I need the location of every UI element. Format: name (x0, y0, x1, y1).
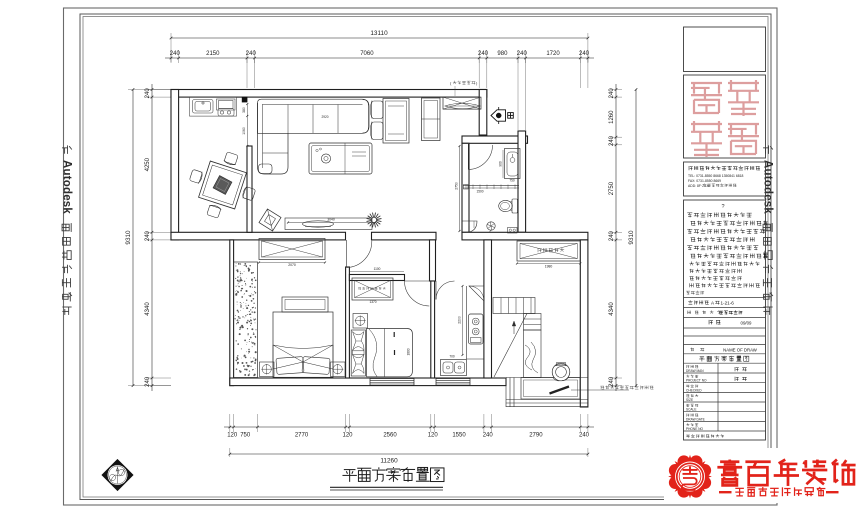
svg-text:240: 240 (246, 51, 257, 57)
svg-text:700: 700 (449, 355, 455, 359)
svg-text:TEL: 0731-8550 8668 1350841 6: TEL: 0731-8550 8668 1350841 6818 (688, 174, 744, 178)
svg-text:750: 750 (509, 179, 515, 183)
svg-text:1100: 1100 (374, 267, 381, 271)
svg-text:900: 900 (499, 161, 503, 167)
svg-text:240: 240 (609, 88, 615, 99)
svg-text:2920: 2920 (321, 115, 328, 119)
svg-text:240: 240 (609, 230, 615, 241)
svg-text:1060: 1060 (242, 127, 246, 135)
svg-text:1980: 1980 (545, 265, 553, 269)
svg-text:Autodesk: Autodesk (60, 160, 72, 214)
svg-text:2750: 2750 (609, 181, 615, 195)
svg-text:2750: 2750 (455, 182, 459, 190)
svg-text:4250: 4250 (145, 157, 151, 171)
svg-text:240: 240 (579, 433, 590, 439)
svg-text:380: 380 (242, 107, 246, 113)
svg-text:2200: 2200 (458, 316, 462, 324)
svg-text:240: 240 (609, 135, 615, 146)
svg-text:9310: 9310 (628, 230, 635, 245)
svg-text:1550: 1550 (452, 433, 466, 439)
svg-text:240: 240 (579, 51, 590, 57)
svg-text:13110: 13110 (370, 30, 388, 37)
svg-text:DRAW MAN: DRAW MAN (686, 369, 704, 373)
svg-text:CHECKED: CHECKED (686, 388, 702, 392)
svg-text:1370: 1370 (369, 300, 376, 304)
svg-text:2770: 2770 (295, 433, 309, 439)
svg-text:1500: 1500 (476, 190, 483, 194)
svg-text:1800: 1800 (407, 348, 411, 355)
svg-text:120: 120 (227, 433, 238, 439)
svg-text:240: 240 (478, 51, 489, 57)
svg-text:9310: 9310 (125, 230, 132, 245)
svg-text:240: 240 (483, 433, 494, 439)
svg-text:1-21-6: 1-21-6 (721, 301, 735, 306)
svg-text:7060: 7060 (360, 51, 374, 57)
svg-text:240: 240 (170, 51, 181, 57)
svg-text:980: 980 (497, 51, 508, 57)
svg-text:2560: 2560 (383, 433, 397, 439)
svg-text:240: 240 (517, 51, 528, 57)
svg-text:11260: 11260 (380, 458, 398, 465)
svg-text:2790: 2790 (529, 433, 543, 439)
svg-text:2150: 2150 (206, 51, 220, 57)
svg-text:3040: 3040 (327, 218, 335, 222)
svg-text:PROJECT NO: PROJECT NO (686, 379, 707, 383)
svg-text:NAME OF DRAW: NAME OF DRAW (723, 348, 758, 353)
svg-text:240: 240 (145, 376, 151, 387)
svg-text:Autodesk: Autodesk (761, 160, 773, 214)
svg-text:DRAW DATE: DRAW DATE (686, 417, 705, 421)
svg-text:PHONE NO: PHONE NO (686, 427, 704, 431)
svg-text:SIZE: SIZE (686, 398, 693, 402)
svg-text:09/09: 09/09 (741, 321, 753, 326)
svg-text:SCALE: SCALE (686, 408, 696, 412)
svg-text:4340: 4340 (145, 302, 151, 316)
svg-text:120: 120 (342, 433, 353, 439)
svg-text:240: 240 (609, 376, 615, 387)
svg-text:FAX: 0731-8550 8669: FAX: 0731-8550 8669 (688, 179, 721, 183)
svg-text:1260: 1260 (609, 110, 615, 124)
svg-text:1720: 1720 (546, 51, 560, 57)
svg-text:240: 240 (145, 230, 151, 241)
svg-text:4340: 4340 (609, 302, 615, 316)
svg-text:750: 750 (240, 433, 251, 439)
svg-text:240: 240 (145, 88, 151, 99)
svg-text:?: ? (721, 204, 724, 210)
svg-text:120: 120 (428, 433, 439, 439)
svg-text:2070: 2070 (288, 263, 296, 267)
